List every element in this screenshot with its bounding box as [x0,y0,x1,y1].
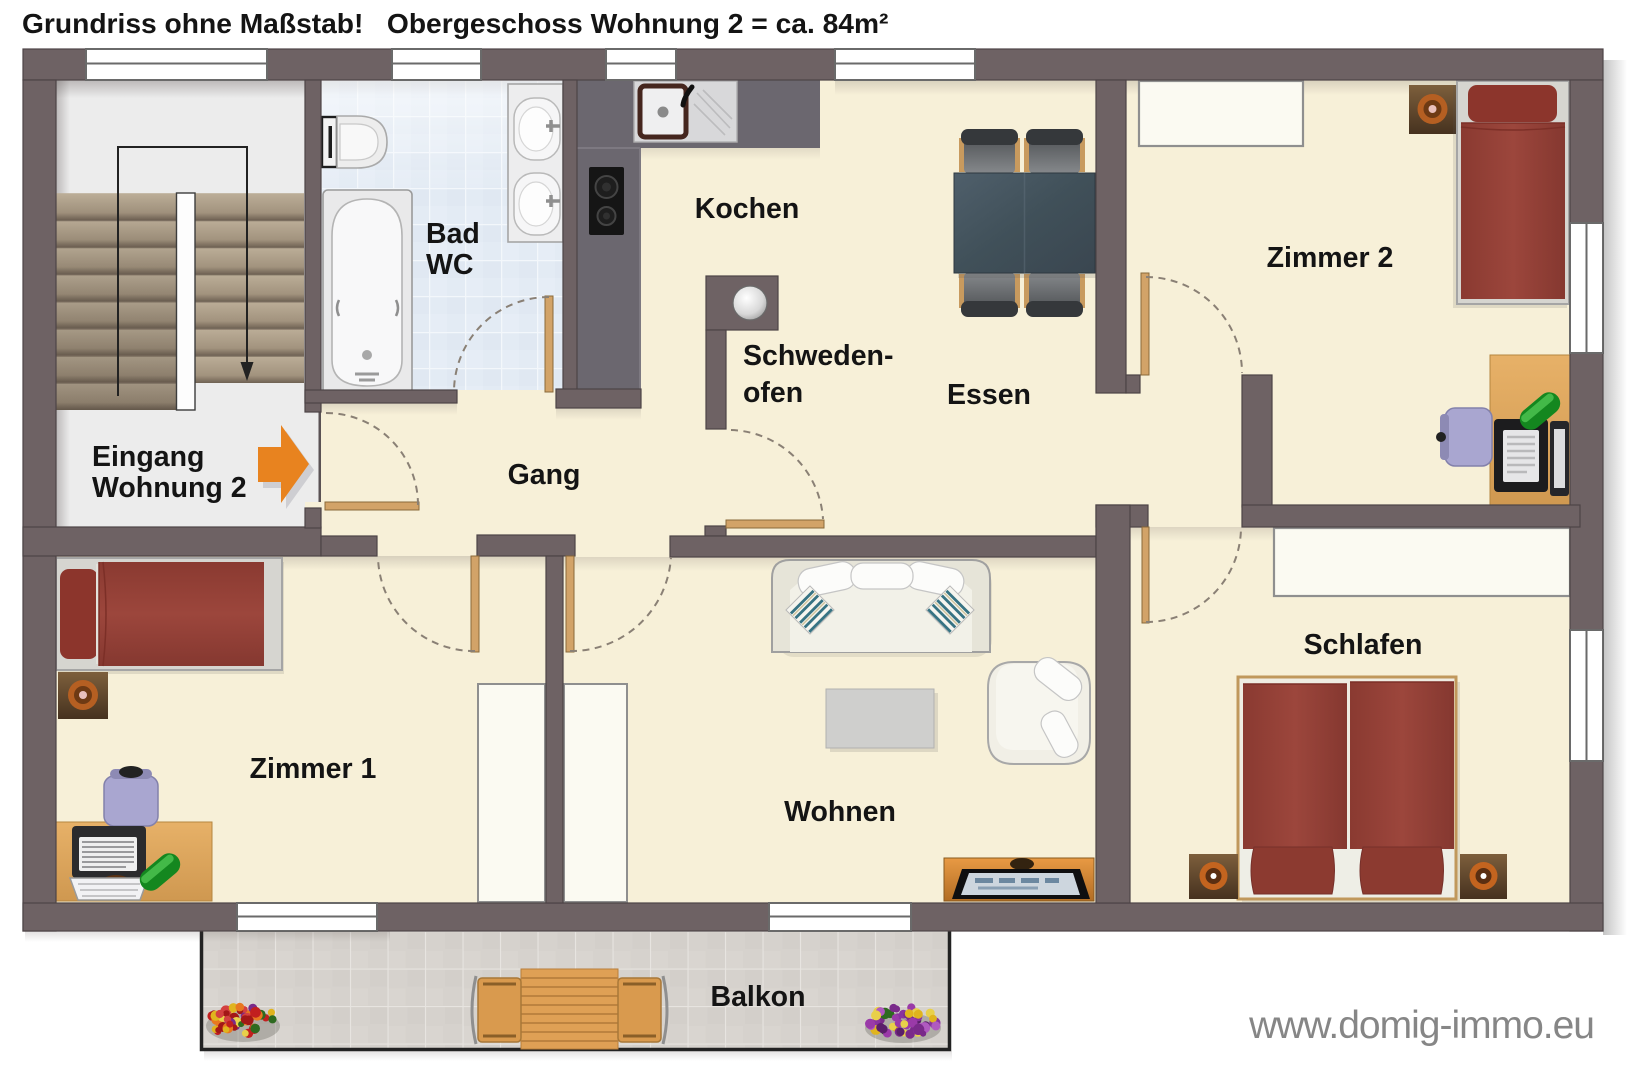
svg-text:ofen: ofen [743,377,803,409]
svg-text:www.domig-immo.eu: www.domig-immo.eu [1248,1004,1594,1047]
svg-text:Kochen: Kochen [695,193,800,225]
svg-text:Essen: Essen [947,379,1031,411]
svg-text:Zimmer 1: Zimmer 1 [250,753,377,785]
svg-text:Zimmer 2: Zimmer 2 [1267,242,1394,274]
svg-text:Schweden-: Schweden- [743,340,893,372]
svg-text:Grundriss ohne Maßstab! Ober: Grundriss ohne Maßstab! Obergeschoss Woh… [22,7,888,39]
svg-text:Bad: Bad [426,218,480,250]
svg-text:Balkon: Balkon [710,981,805,1013]
svg-text:Wohnung 2: Wohnung 2 [92,472,247,504]
svg-text:WC: WC [426,249,473,281]
svg-text:Schlafen: Schlafen [1304,629,1423,661]
svg-text:Wohnen: Wohnen [784,796,896,828]
svg-text:Eingang: Eingang [92,441,204,473]
svg-text:Gang: Gang [508,459,581,491]
